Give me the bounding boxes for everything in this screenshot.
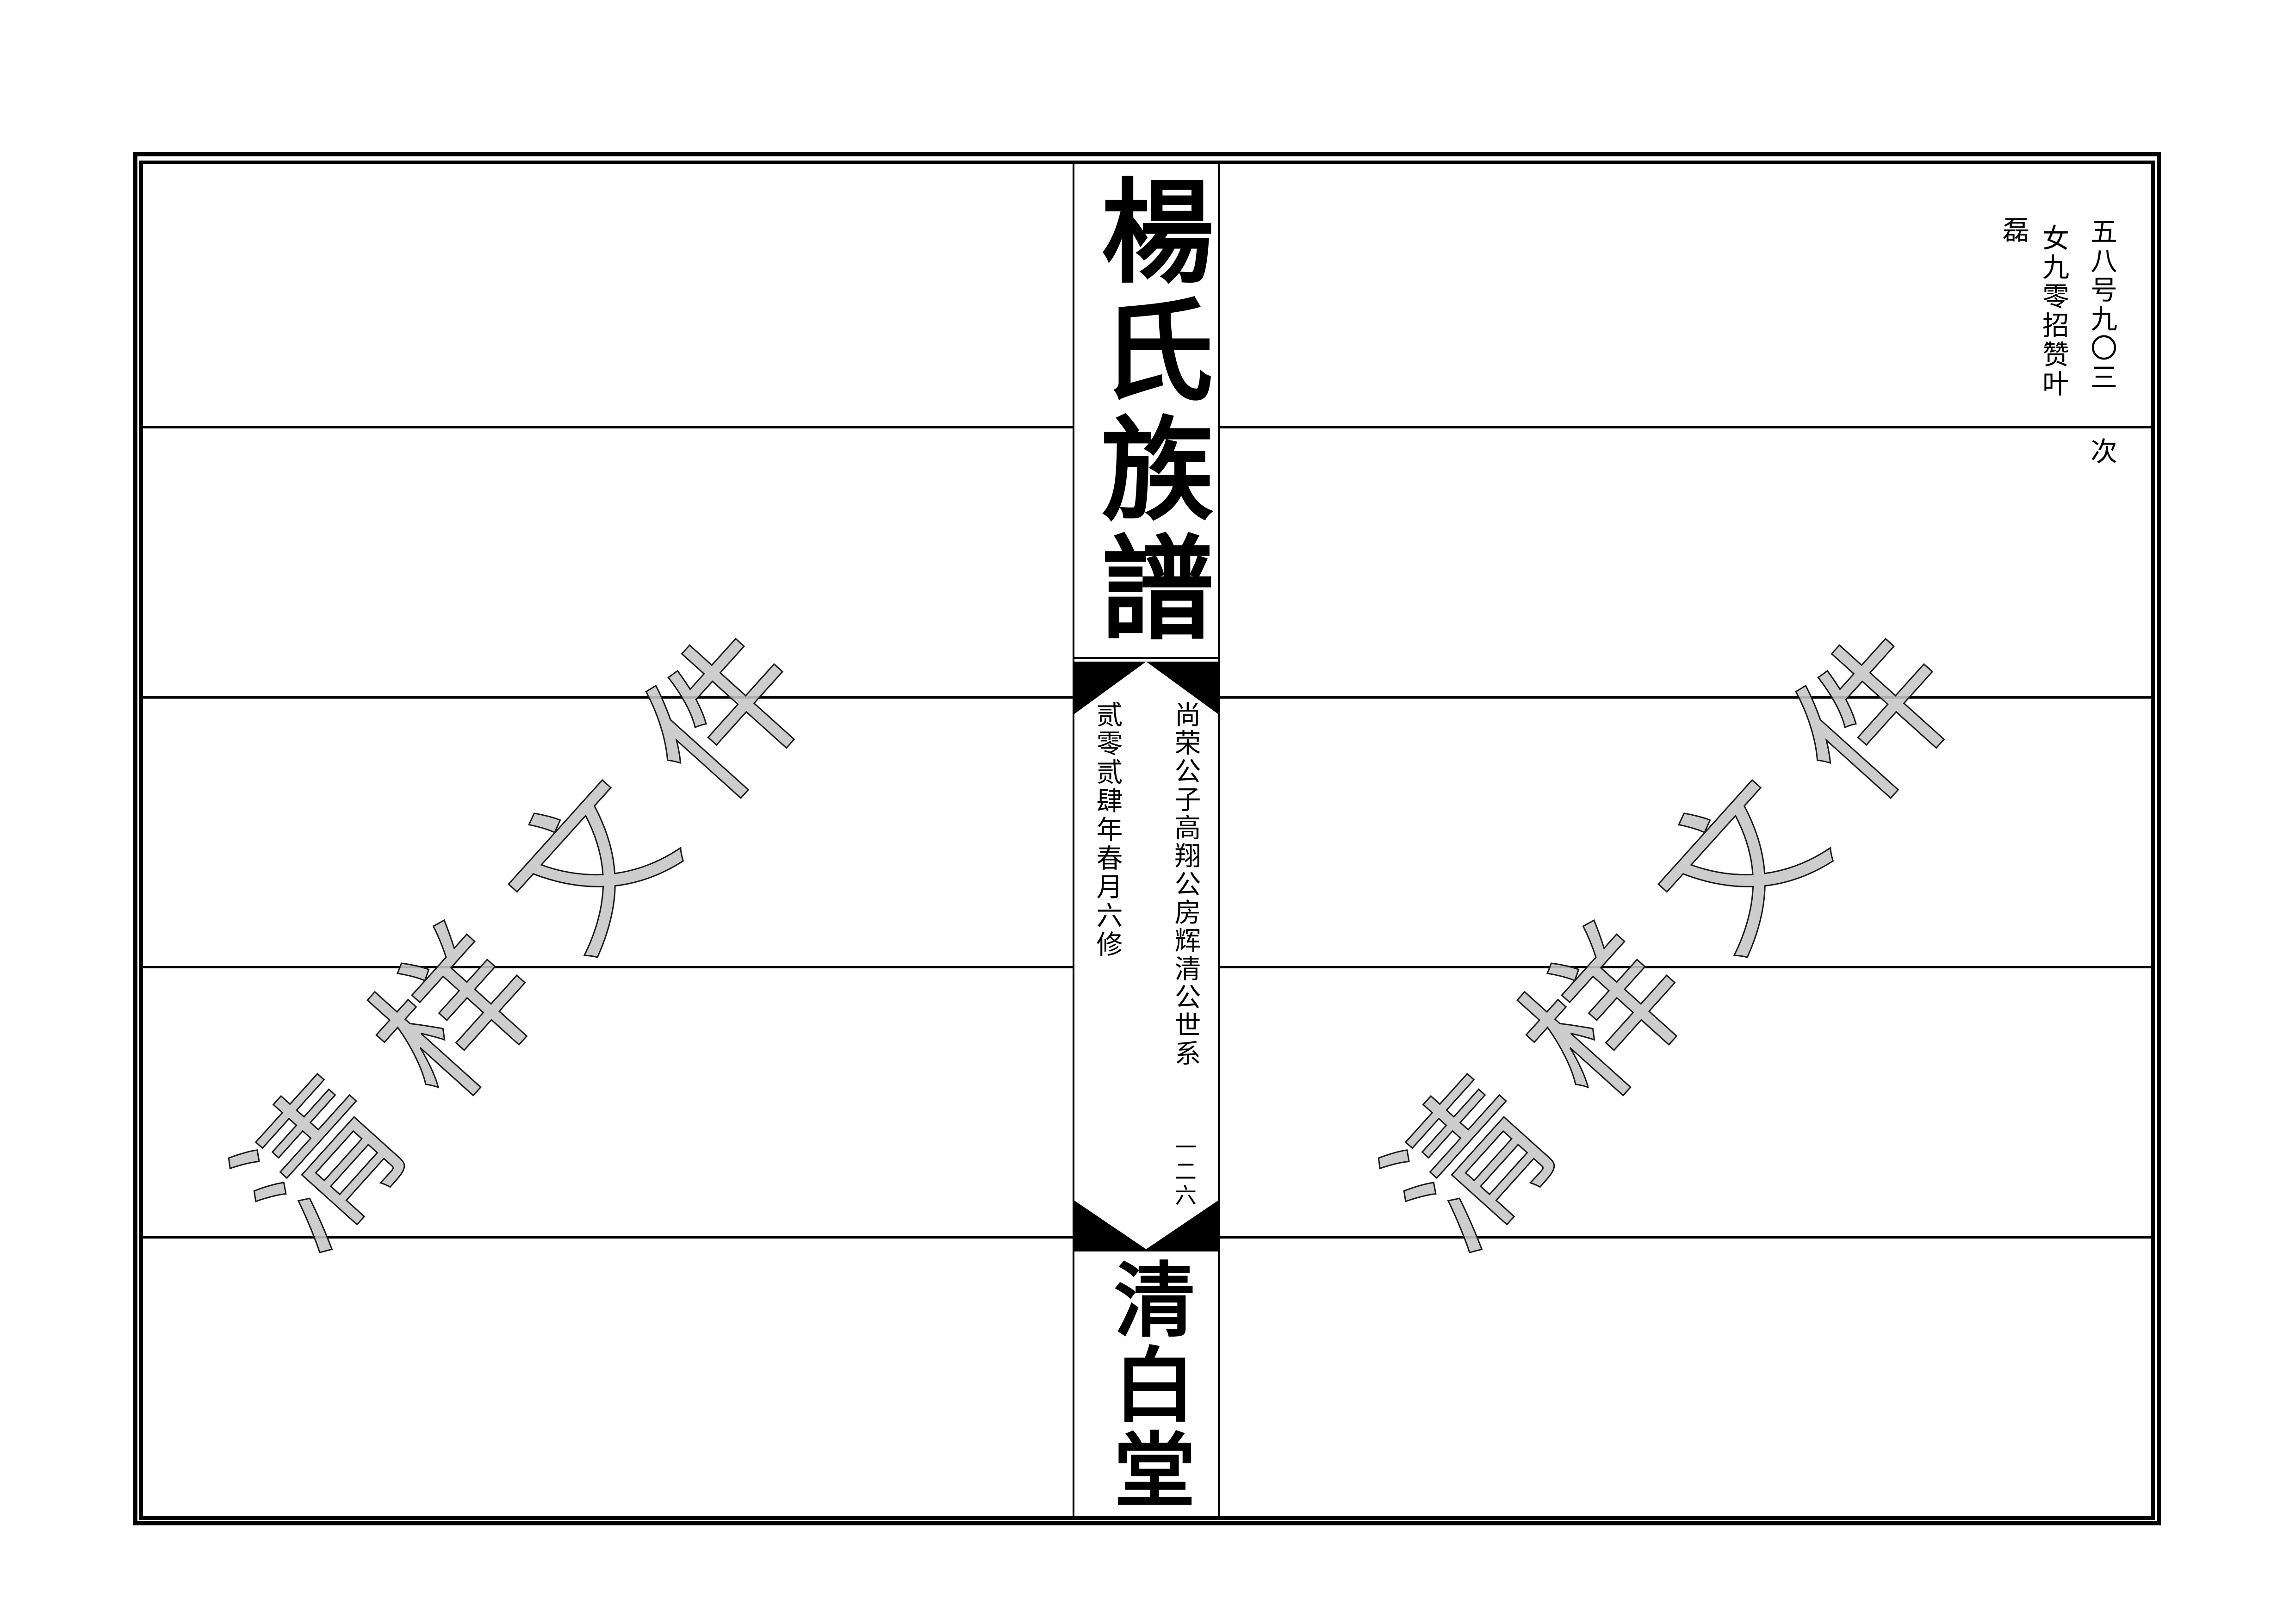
edition-year-line: 贰零贰肆年春月六修 xyxy=(1094,701,1120,959)
book-title: 楊氏族譜 xyxy=(1090,173,1203,649)
fishtail-lower-icon xyxy=(1074,1201,1218,1251)
hall-name: 清白堂 xyxy=(1105,1258,1187,1513)
genealogy-page-sheet: 清样文件 清样文件 楊氏族譜 尚荣公子高翔公房辉清公世系 贰零贰肆年春月六修 一… xyxy=(0,0,2296,1623)
margin-next-label: 次 xyxy=(2088,437,2115,466)
spine-title-box: 楊氏族譜 xyxy=(1074,164,1218,659)
margin-name-column: 女九零招赞叶 xyxy=(2040,224,2066,399)
margin-name-lei: 磊 xyxy=(2000,216,2027,245)
lineage-branch-line: 尚荣公子高翔公房辉清公世系 xyxy=(1172,701,1198,1068)
book-spine-column: 楊氏族譜 尚荣公子高翔公房辉清公世系 贰零贰肆年春月六修 一二六 清白堂 xyxy=(1073,164,1220,1516)
spine-page-number: 一二六 xyxy=(1172,1136,1194,1208)
hall-name-box: 清白堂 xyxy=(1074,1254,1218,1516)
margin-number-column: 五八号九〇三 xyxy=(2088,217,2115,392)
